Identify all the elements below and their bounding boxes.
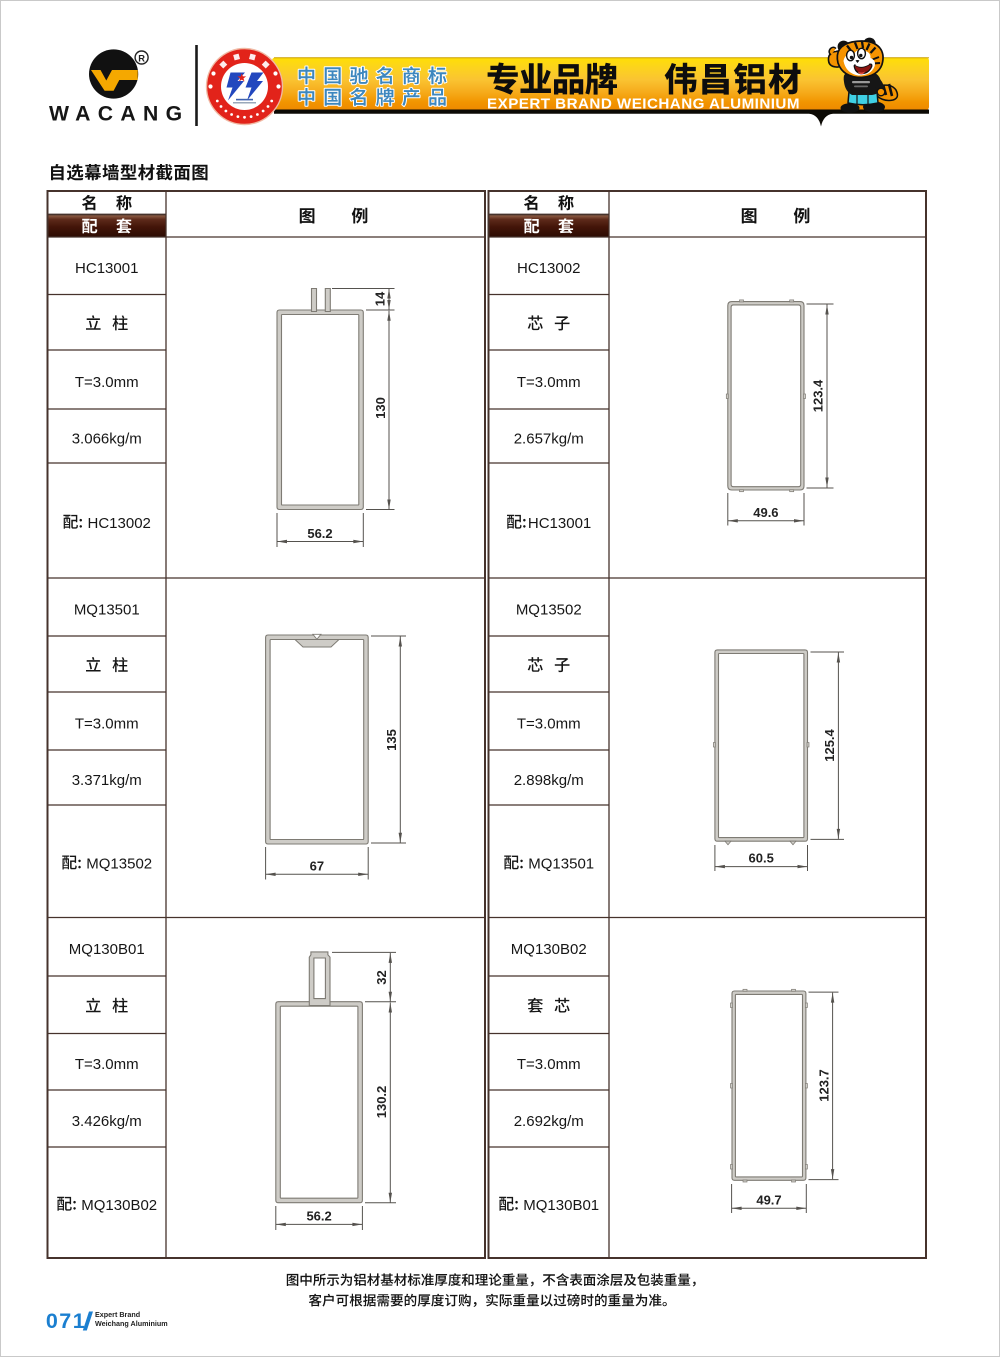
svg-text:MQ13501: MQ13501 bbox=[528, 856, 594, 873]
svg-text:T=3.0mm: T=3.0mm bbox=[517, 715, 581, 732]
svg-text:T=3.0mm: T=3.0mm bbox=[517, 374, 581, 391]
svg-text:135: 135 bbox=[384, 729, 399, 751]
svg-text:HC13002: HC13002 bbox=[88, 515, 151, 532]
svg-text:3.066kg/m: 3.066kg/m bbox=[72, 430, 142, 447]
svg-text:32: 32 bbox=[374, 970, 389, 984]
svg-text:WACANG: WACANG bbox=[49, 103, 189, 126]
svg-text:49.7: 49.7 bbox=[756, 1192, 781, 1207]
svg-text:49.6: 49.6 bbox=[753, 505, 778, 520]
svg-text:130: 130 bbox=[373, 397, 388, 419]
svg-text:EXPERT BRAND WEICHANG ALUMINIU: EXPERT BRAND WEICHANG ALUMINIUM bbox=[487, 95, 800, 112]
svg-text:130.2: 130.2 bbox=[374, 1086, 389, 1119]
svg-text:14: 14 bbox=[373, 291, 388, 306]
svg-text:T=3.0mm: T=3.0mm bbox=[75, 715, 139, 732]
svg-text:3.426kg/m: 3.426kg/m bbox=[72, 1113, 142, 1130]
svg-text:123.7: 123.7 bbox=[816, 1069, 831, 1102]
svg-text:Expert Brand: Expert Brand bbox=[95, 1310, 140, 1319]
svg-text:Weichang Aluminium: Weichang Aluminium bbox=[95, 1319, 168, 1328]
svg-text:MQ13501: MQ13501 bbox=[74, 601, 140, 618]
svg-text:67: 67 bbox=[310, 859, 324, 874]
svg-text:HC13002: HC13002 bbox=[517, 260, 580, 277]
svg-text:071: 071 bbox=[46, 1309, 86, 1333]
svg-text:123.4: 123.4 bbox=[811, 379, 826, 412]
svg-text:56.2: 56.2 bbox=[307, 526, 332, 541]
svg-text:MQ130B02: MQ130B02 bbox=[81, 1197, 157, 1214]
svg-text:T=3.0mm: T=3.0mm bbox=[75, 1056, 139, 1073]
svg-text:MQ130B01: MQ130B01 bbox=[69, 941, 145, 958]
svg-text:MQ13502: MQ13502 bbox=[86, 856, 152, 873]
svg-text:56.2: 56.2 bbox=[306, 1209, 331, 1224]
svg-text:125.4: 125.4 bbox=[822, 728, 837, 761]
svg-text:R: R bbox=[138, 54, 145, 64]
svg-text:3.371kg/m: 3.371kg/m bbox=[72, 772, 142, 789]
svg-text:MQ130B01: MQ130B01 bbox=[523, 1197, 599, 1214]
svg-text:T=3.0mm: T=3.0mm bbox=[75, 374, 139, 391]
svg-text:HC13001: HC13001 bbox=[75, 260, 138, 277]
svg-text:MQ130B02: MQ130B02 bbox=[511, 941, 587, 958]
svg-text:2.898kg/m: 2.898kg/m bbox=[514, 772, 584, 789]
svg-text:2.692kg/m: 2.692kg/m bbox=[514, 1113, 584, 1130]
svg-text:2.657kg/m: 2.657kg/m bbox=[514, 430, 584, 447]
svg-text:T=3.0mm: T=3.0mm bbox=[517, 1056, 581, 1073]
svg-text:MQ13502: MQ13502 bbox=[516, 601, 582, 618]
svg-text:60.5: 60.5 bbox=[749, 851, 774, 866]
svg-text:HC13001: HC13001 bbox=[528, 515, 591, 532]
